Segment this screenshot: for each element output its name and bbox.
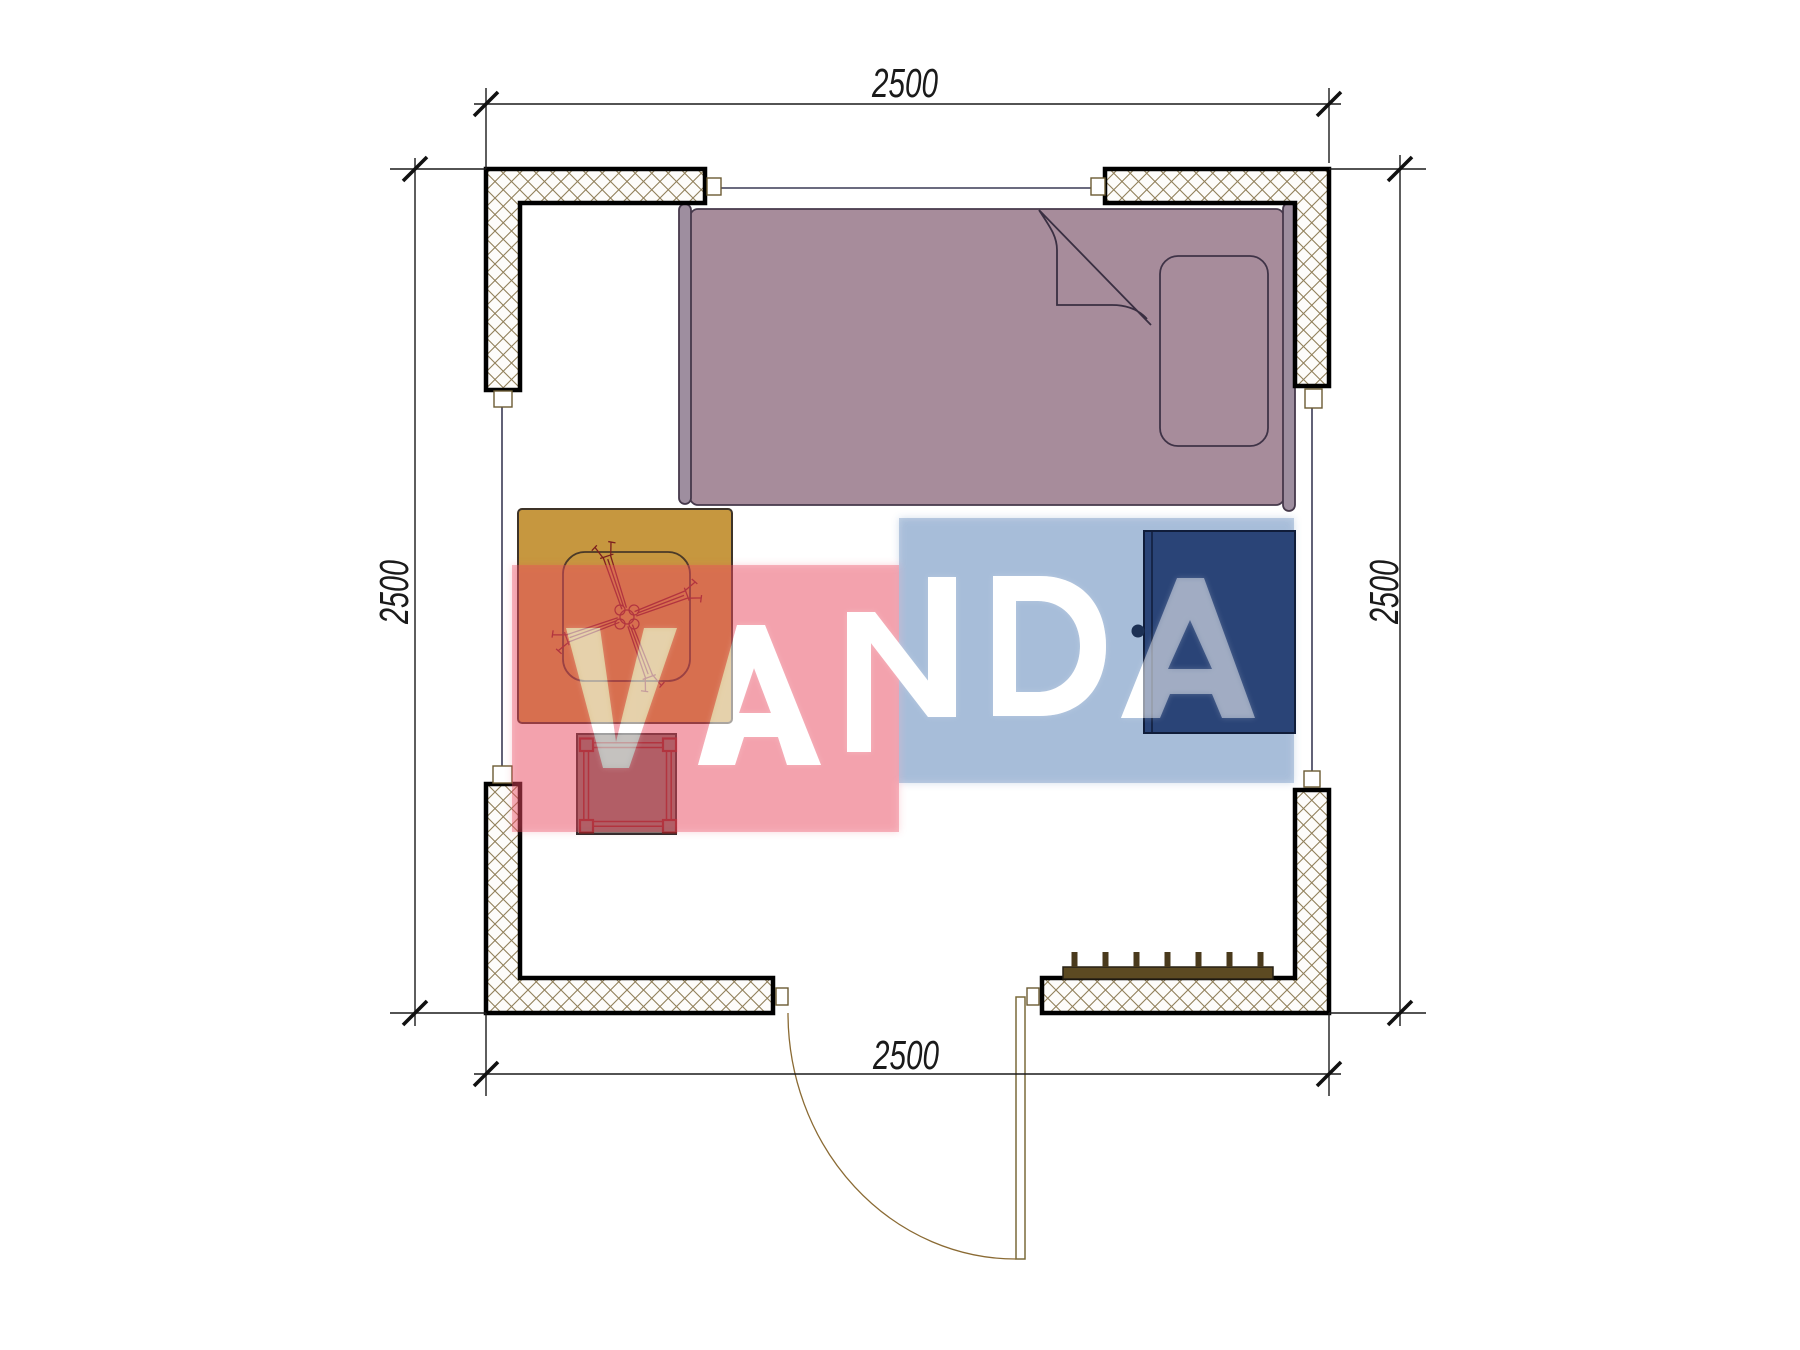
svg-text:2500: 2500 [872,1032,939,1078]
svg-text:2500: 2500 [871,60,938,106]
svg-text:2500: 2500 [371,560,417,625]
svg-text:2500: 2500 [1361,560,1407,625]
